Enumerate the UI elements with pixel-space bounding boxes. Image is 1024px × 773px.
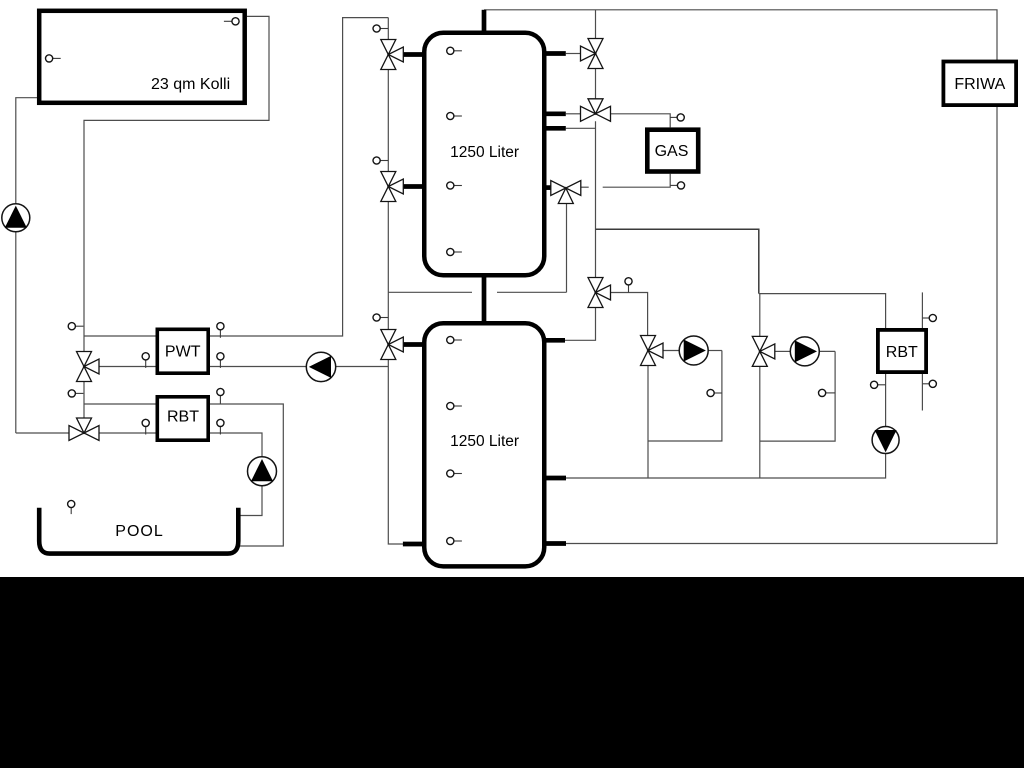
svg-text:1250 Liter: 1250 Liter bbox=[450, 144, 519, 161]
svg-text:23 qm Kolli: 23 qm Kolli bbox=[151, 76, 230, 93]
svg-text:PWT: PWT bbox=[165, 343, 201, 360]
svg-text:FRIWA: FRIWA bbox=[954, 76, 1005, 93]
svg-text:GAS: GAS bbox=[655, 143, 689, 160]
svg-text:POOL: POOL bbox=[115, 523, 163, 540]
svg-text:RBT: RBT bbox=[886, 344, 918, 361]
svg-text:1250 Liter: 1250 Liter bbox=[450, 433, 519, 450]
svg-text:RBT: RBT bbox=[167, 409, 199, 426]
